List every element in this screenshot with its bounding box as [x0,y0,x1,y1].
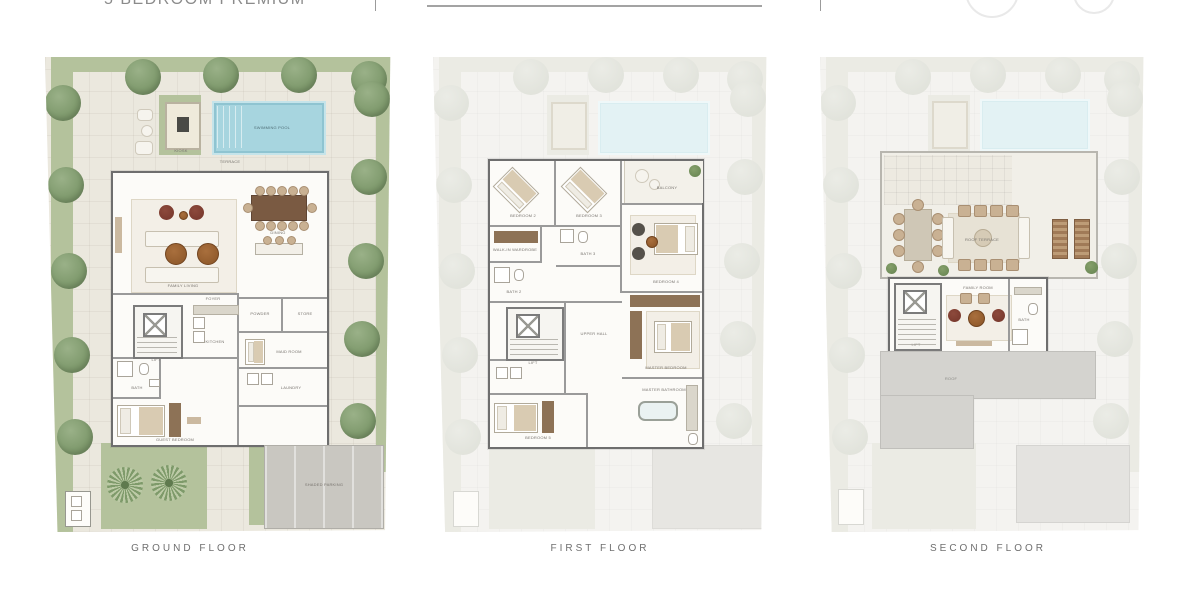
landscape-strip-left [826,57,848,532]
dining-chair [307,203,317,213]
bedroom4-label: BEDROOM 4 [653,279,679,284]
landscape-strip-left [439,57,461,532]
parking-label: SHADED PARKING [305,482,343,487]
tree-icon [826,253,862,289]
ground-floor-caption: GROUND FLOOR [90,543,290,554]
master-bed [654,321,692,353]
maid-bed [245,339,265,365]
tree-icon [513,59,549,95]
plant-icon [886,263,897,274]
lift [143,313,167,337]
bed [561,167,608,214]
tree-icon [281,57,317,93]
appliance [193,317,205,329]
bar-stool [287,236,296,245]
tree-icon [445,419,481,455]
tree-icon [829,337,865,373]
dining-chair [288,221,298,231]
pool-kiosk-ghost [551,102,587,150]
vanity [686,385,698,431]
tree-icon [354,81,390,117]
washbasin [149,379,160,387]
wardrobe [630,311,642,359]
partition-wall [622,377,702,379]
bed [494,403,538,433]
dining-chair [243,203,253,213]
tree-icon [433,85,469,121]
first-floor-plan: BEDROOM 2 BEDROOM 3 WALK-IN WARDROBE BAT… [433,57,768,532]
shower [494,267,510,283]
coffee-table [968,310,985,327]
outdoor-chair [893,213,905,225]
second-floor-plan: ROOF TERRACE FAMILY RO [820,57,1145,532]
roofterrace-label: ROOF TERRACE [965,237,999,242]
roof-area [880,395,974,449]
bedroom2-label: BEDROOM 2 [510,213,536,218]
lift [903,290,927,314]
palm-tree-icon [107,467,143,503]
tree-icon [1097,321,1133,357]
roof-area: ROOF [880,351,1096,399]
sun-lounger [1052,219,1068,259]
kitchen-label: KITCHEN [206,339,225,344]
bedroom3-label: BEDROOM 3 [576,213,602,218]
roof-terrace: ROOF TERRACE [880,151,1098,279]
outdoor-armchair [990,205,1003,217]
partition-wall [159,357,161,399]
tree-icon [720,321,756,357]
tree-icon [716,403,752,439]
hall-label: UPPER HALL [581,331,608,336]
armchair [978,293,990,304]
tree-icon [51,253,87,289]
meter-unit [71,510,82,521]
armchair [960,293,972,304]
shower [117,361,133,377]
guest-bed [117,405,165,437]
partition-wall [239,297,327,299]
partition-wall [622,291,702,293]
toilet [688,433,698,445]
tree-icon [57,419,93,455]
partition-wall [622,203,702,205]
staircase [894,283,942,351]
outdoor-armchair [974,259,987,271]
tree-icon [203,57,239,93]
tree-icon [436,167,472,203]
outdoor-seat [141,125,153,137]
tree-icon [588,57,624,93]
partition-wall [1008,279,1010,353]
coffee-table [165,243,187,265]
dining-chair [299,221,309,231]
outdoor-dining-table [904,209,932,261]
plant-icon [1085,261,1098,274]
side-table [646,236,658,248]
washer [261,373,273,385]
armchair [632,247,645,260]
tree-icon [1045,57,1081,93]
shower [560,229,574,243]
armchair [992,309,1005,322]
bath-label: BATH [131,385,142,390]
ground-floor-plan: SWIMMING POOL KIOSK TERRACE [45,57,392,532]
outdoor-sofa [1018,217,1030,259]
outdoor-chair [893,229,905,241]
kiosk-core [177,117,189,132]
balcony: BALCONY [624,161,703,203]
kiosk-label: KIOSK [174,148,187,153]
brochure-page: 5 BEDROOM PREMIUM [0,0,1200,590]
living-label: FAMILY LIVING [168,283,199,288]
dining-chair [255,221,265,231]
console-table [115,217,122,253]
partition-wall [113,293,239,295]
terrace-label: TERRACE [220,159,241,164]
outdoor-armchair [1006,205,1019,217]
bath3-label: BATH 3 [581,251,596,256]
partition-wall [556,265,622,267]
tv-console [956,341,992,346]
tree-icon [351,159,387,195]
tree-icon [439,253,475,289]
tree-icon [730,81,766,117]
appliance [193,331,205,343]
toilet [514,269,524,281]
store-label: STORE [298,311,313,316]
dining-chair [277,186,287,196]
meter-unit [71,496,82,507]
outdoor-chair [893,245,905,257]
partition-wall [554,161,556,227]
staircase [506,307,564,361]
tree-icon [970,57,1006,93]
bar-stool [275,236,284,245]
pool-kiosk [165,102,201,150]
header-rule [427,5,762,7]
tree-icon [727,159,763,195]
vanity [1014,287,1042,295]
bed [493,167,540,214]
swimming-pool-ghost [980,99,1090,151]
tree-icon [895,59,931,95]
outdoor-sofa [942,217,954,259]
outdoor-chair [912,261,924,273]
pool-label: SWIMMING POOL [254,125,290,130]
staircase [133,305,183,359]
bed [654,223,698,255]
rear-lawn [489,443,595,529]
tree-icon [348,243,384,279]
laundry-label: LAUNDRY [281,385,301,390]
pergola-tiles [884,155,1012,205]
parking-roof-ghost [1016,445,1130,523]
lift-label: LIFT [911,342,920,347]
tree-icon [832,419,868,455]
tree-icon [340,403,376,439]
header-divider-left [375,0,376,11]
wardrobe [542,401,554,433]
outdoor-armchair [958,205,971,217]
tree-icon [125,59,161,95]
bedroom5-label: BEDROOM 5 [525,435,551,440]
plant-icon [938,265,949,276]
armchair [189,205,204,220]
partition-wall [237,293,239,445]
partition-wall [620,161,622,293]
parking-roof-ghost [652,445,764,529]
villa-footprint: FAMILY LIVING DINING [111,171,329,447]
bench [187,417,201,424]
landscape-strip-left [51,57,73,532]
decor-circle-icon [1073,0,1115,14]
armchair [632,223,645,236]
utility-meter-ghost [453,491,479,527]
lift-label: LIFT [151,357,160,362]
tree-icon [1093,403,1129,439]
utility-meter-ghost [838,489,864,525]
foyer-label: FOYER [206,296,221,301]
tree-icon [820,85,856,121]
partition-wall [586,395,588,447]
wardrobe [169,403,181,437]
dining-chair [266,186,276,196]
tree-icon [1104,159,1140,195]
outdoor-armchair [990,259,1003,271]
plant-icon [689,165,701,177]
family-room-footprint: FAMILY ROOM LIFT BATH [888,277,1048,355]
plot-boundary: SWIMMING POOL KIOSK TERRACE [45,57,392,532]
stair-steps [898,315,936,345]
outdoor-chair [912,199,924,211]
tree-icon [1107,81,1143,117]
sun-lounger [1074,219,1090,259]
bath2-label: BATH 2 [507,289,522,294]
partition-wall [540,227,542,263]
partition-wall [239,367,327,369]
plot-boundary-ghost: ROOF TERRACE FAMILY RO [820,57,1145,532]
powder-label: POWDER [250,311,269,316]
palm-tree-icon [151,465,187,501]
outdoor-armchair [958,259,971,271]
tree-icon [344,321,380,357]
tree-icon [48,167,84,203]
header-divider-right [820,0,821,11]
wardrobe [494,231,538,243]
dining-table [251,195,307,221]
lift-label: LIFT [528,360,537,365]
washer [247,373,259,385]
partition-wall [113,397,161,399]
decor-circle-icon [965,0,1019,18]
partition-wall [281,297,283,333]
parking-side-lawn [249,445,264,525]
second-floor-caption: SECOND FLOOR [888,543,1088,554]
guest-label: GUEST BEDROOM [156,437,194,442]
partition-wall [239,331,327,333]
partition-wall [239,405,327,407]
toilet [139,363,149,375]
bar-stool [263,236,272,245]
toilet [578,231,588,243]
outdoor-armchair [974,205,987,217]
bathtub [638,401,678,421]
first-floor-footprint: BEDROOM 2 BEDROOM 3 WALK-IN WARDROBE BAT… [488,159,704,449]
washer [496,367,508,379]
tree-icon [724,243,760,279]
wardrobe [630,295,700,307]
lift [516,314,540,338]
utility-meter-box [65,491,91,527]
page-title: 5 BEDROOM PREMIUM [104,0,306,9]
toilet [1028,303,1038,315]
balcony-label: BALCONY [657,185,678,190]
shower [1012,329,1028,345]
outdoor-armchair [1006,259,1019,271]
partition-wall [564,303,566,395]
washer [510,367,522,379]
side-table [179,211,188,220]
armchair [948,309,961,322]
first-floor-caption: FIRST FLOOR [500,543,700,554]
pool-lane-lines [217,106,245,148]
family-label: FAMILY ROOM [963,285,993,290]
tree-icon [663,57,699,93]
bath-label: BATH [1018,317,1029,322]
pool-kiosk-ghost [932,101,968,149]
maid-label: MAID ROOM [276,349,301,354]
balcony-table [635,169,649,183]
walkin-label: WALK-IN WARDROBE [493,247,537,252]
swimming-pool: SWIMMING POOL [212,101,326,155]
roof-label: ROOF [945,376,957,381]
tree-icon [1101,243,1137,279]
outdoor-seat [135,141,153,155]
outdoor-seat [137,109,153,121]
tree-icon [54,337,90,373]
rear-lawn [872,443,976,529]
tree-icon [45,85,81,121]
dining-label: DINING [270,230,285,235]
kitchen-counter [193,305,239,315]
dining-chair [255,186,265,196]
swimming-pool-ghost [598,101,710,155]
stair-steps [510,337,558,355]
plot-boundary-ghost: BEDROOM 2 BEDROOM 3 WALK-IN WARDROBE BAT… [433,57,768,532]
sofa [145,267,219,283]
partition-wall [490,301,622,303]
dining-chair [299,186,309,196]
shaded-parking: SHADED PARKING [264,445,384,529]
partition-wall [490,225,622,227]
armchair [159,205,174,220]
tree-icon [823,167,859,203]
coffee-table [197,243,219,265]
dining-chair [288,186,298,196]
tree-icon [442,337,478,373]
stair-steps [137,337,177,353]
partition-wall [490,393,588,395]
partition-wall [490,261,542,263]
master-label: MASTER BEDROOM [645,365,686,370]
masterbath-label: MASTER BATHROOM [642,387,686,392]
